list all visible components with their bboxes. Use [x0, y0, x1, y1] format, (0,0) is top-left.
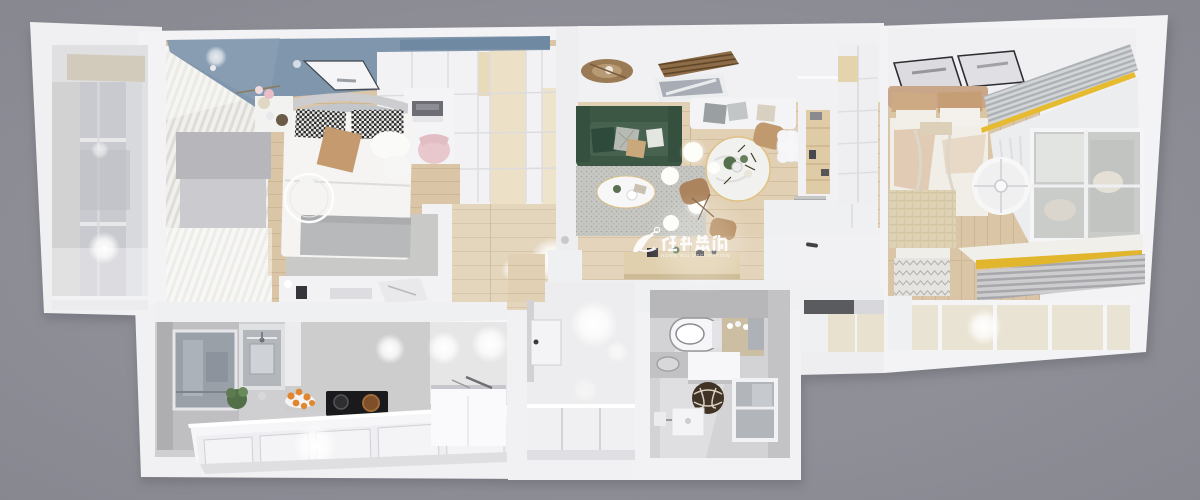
svg-text:HONG NIU DECORATION: HONG NIU DECORATION [661, 253, 730, 258]
